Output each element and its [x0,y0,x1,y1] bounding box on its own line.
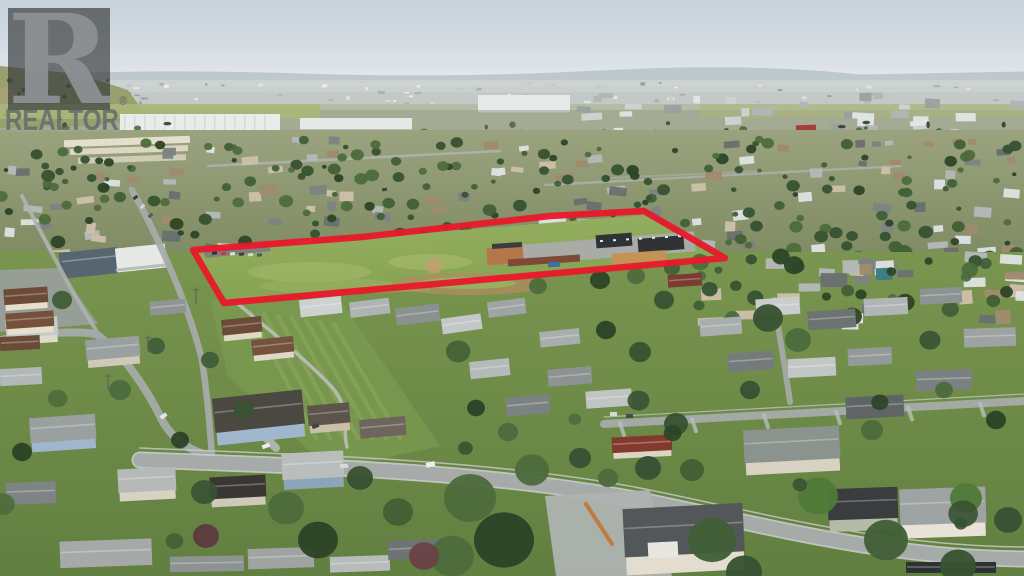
aerial-photo: R REALTOR® [0,0,1024,576]
photo-painting [0,0,1024,576]
aerial-scene [0,0,1024,576]
